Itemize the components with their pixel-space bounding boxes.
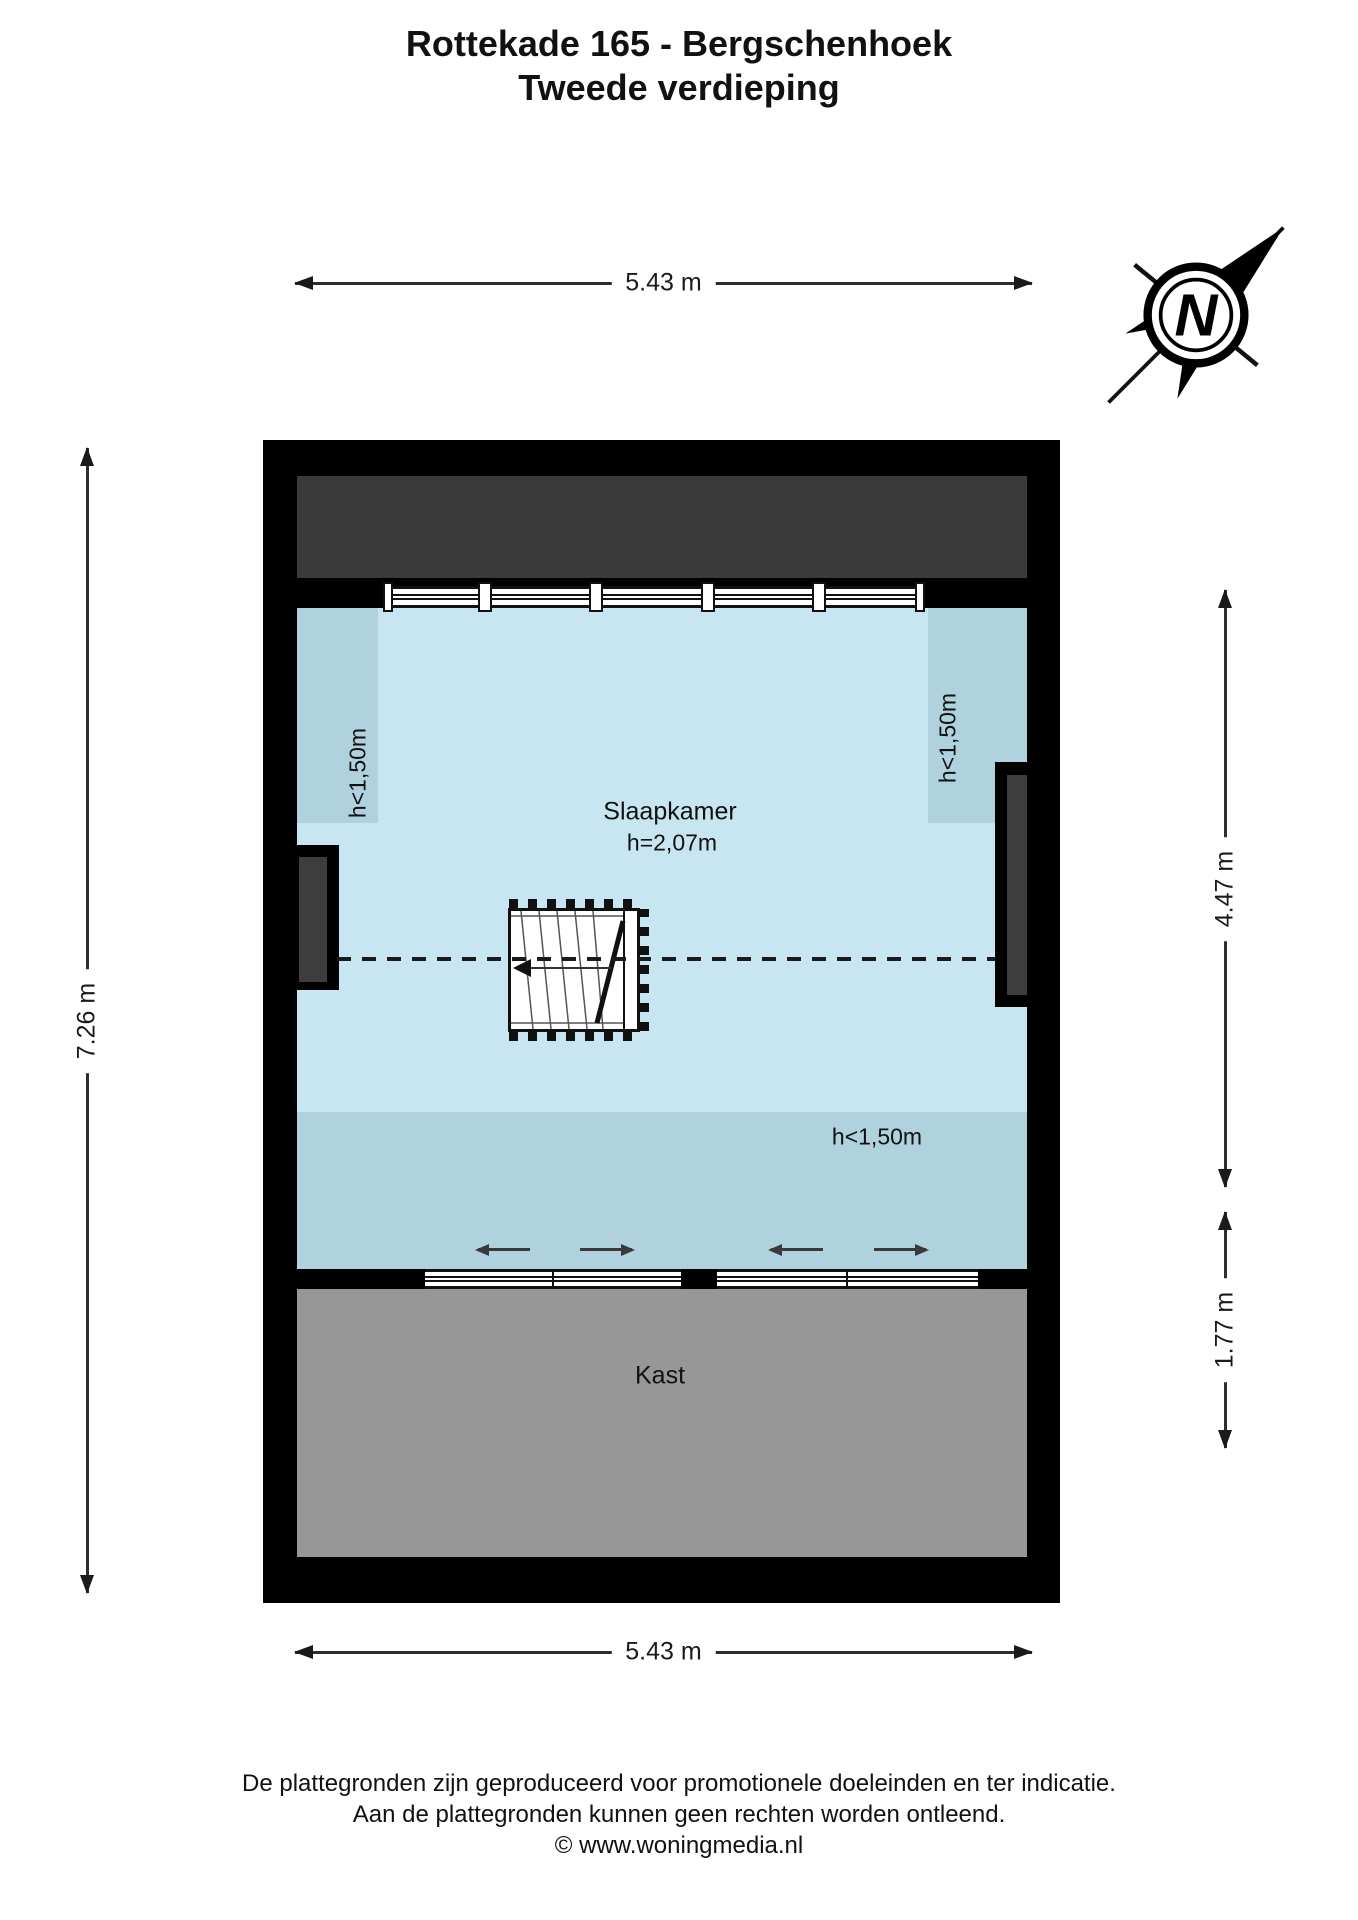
compass-north-icon: N [1103,222,1289,408]
window-mullion [701,582,715,612]
title-floor: Tweede verdieping [0,66,1358,110]
left-shaft [299,857,327,982]
dimension-right-upper: 4.47 m [1211,590,1239,1187]
right-shaft [1007,775,1027,995]
arrowhead-left-icon [294,1645,313,1659]
dimension-right-lower: 1.77 m [1211,1212,1239,1448]
window-mullion [915,582,925,612]
page-title: Rottekade 165 - Bergschenhoek Tweede ver… [0,22,1358,110]
slide-arrow-right-icon [874,1248,926,1251]
arrowhead-up-icon [80,447,94,466]
window-mullion [552,1269,554,1289]
dimension-top-label: 5.43 m [611,267,715,300]
arrowhead-down-icon [1218,1430,1232,1449]
stair-teeth-right [639,909,649,1031]
top-window [383,586,925,608]
closet-label: Kast [635,1362,685,1391]
bedroom-height-label: h=2,07m [627,830,717,857]
footer-line-2: Aan de plattegronden kunnen geen rechten… [0,1799,1358,1830]
bedroom-label: Slaapkamer [603,798,736,827]
compass-north-letter: N [1175,281,1219,348]
arrowhead-down-icon [80,1575,94,1594]
footer-line-3: © www.woningmedia.nl [0,1830,1358,1861]
footer-line-1: De plattegronden zijn geproduceerd voor … [0,1768,1358,1799]
window-mullion [812,582,826,612]
roof-ridge-dashed-line [337,957,995,961]
dimension-left: 7.26 m [73,448,101,1593]
footer-disclaimer: De plattegronden zijn geproduceerd voor … [0,1768,1358,1861]
window-mullion [589,582,603,612]
window-mullion [478,582,492,612]
floor-plan: Slaapkamer h=2,07m h<1,50m h<1,50m h<1,5… [263,440,1060,1603]
dimension-bottom-label: 5.43 m [611,1636,715,1669]
arrowhead-right-icon [1014,276,1033,290]
arrowhead-left-icon [294,276,313,290]
window-mullion [846,1269,848,1289]
slide-arrow-left-icon [478,1248,530,1251]
attic-dark-space [297,476,1027,578]
staircase-symbol [508,908,640,1032]
closet-area [297,1289,1027,1557]
arrowhead-up-icon [1218,1211,1232,1230]
window-mullion [383,582,393,612]
dimension-bottom: 5.43 m [295,1638,1032,1666]
low-ceiling-left-label: h<1,50m [345,728,372,818]
floorplan-page: Rottekade 165 - Bergschenhoek Tweede ver… [0,0,1358,1920]
stair-teeth-top [509,899,639,909]
low-ceiling-right-label: h<1,50m [935,693,962,783]
slide-arrow-left-icon [771,1248,823,1251]
arrowhead-up-icon [1218,589,1232,608]
title-address: Rottekade 165 - Bergschenhoek [0,22,1358,66]
slide-arrow-right-icon [580,1248,632,1251]
arrowhead-down-icon [1218,1169,1232,1188]
dimension-top: 5.43 m [295,269,1032,297]
right-wall-protrusion [995,762,1060,1007]
stair-treads [511,911,637,1029]
dimension-right-upper-label: 4.47 m [1209,836,1242,940]
dimension-left-label: 7.26 m [71,968,104,1072]
low-ceiling-bottom-label: h<1,50m [832,1124,922,1151]
arrowhead-right-icon [1014,1645,1033,1659]
dimension-right-lower-label: 1.77 m [1209,1278,1242,1382]
stair-teeth-bottom [509,1031,639,1041]
